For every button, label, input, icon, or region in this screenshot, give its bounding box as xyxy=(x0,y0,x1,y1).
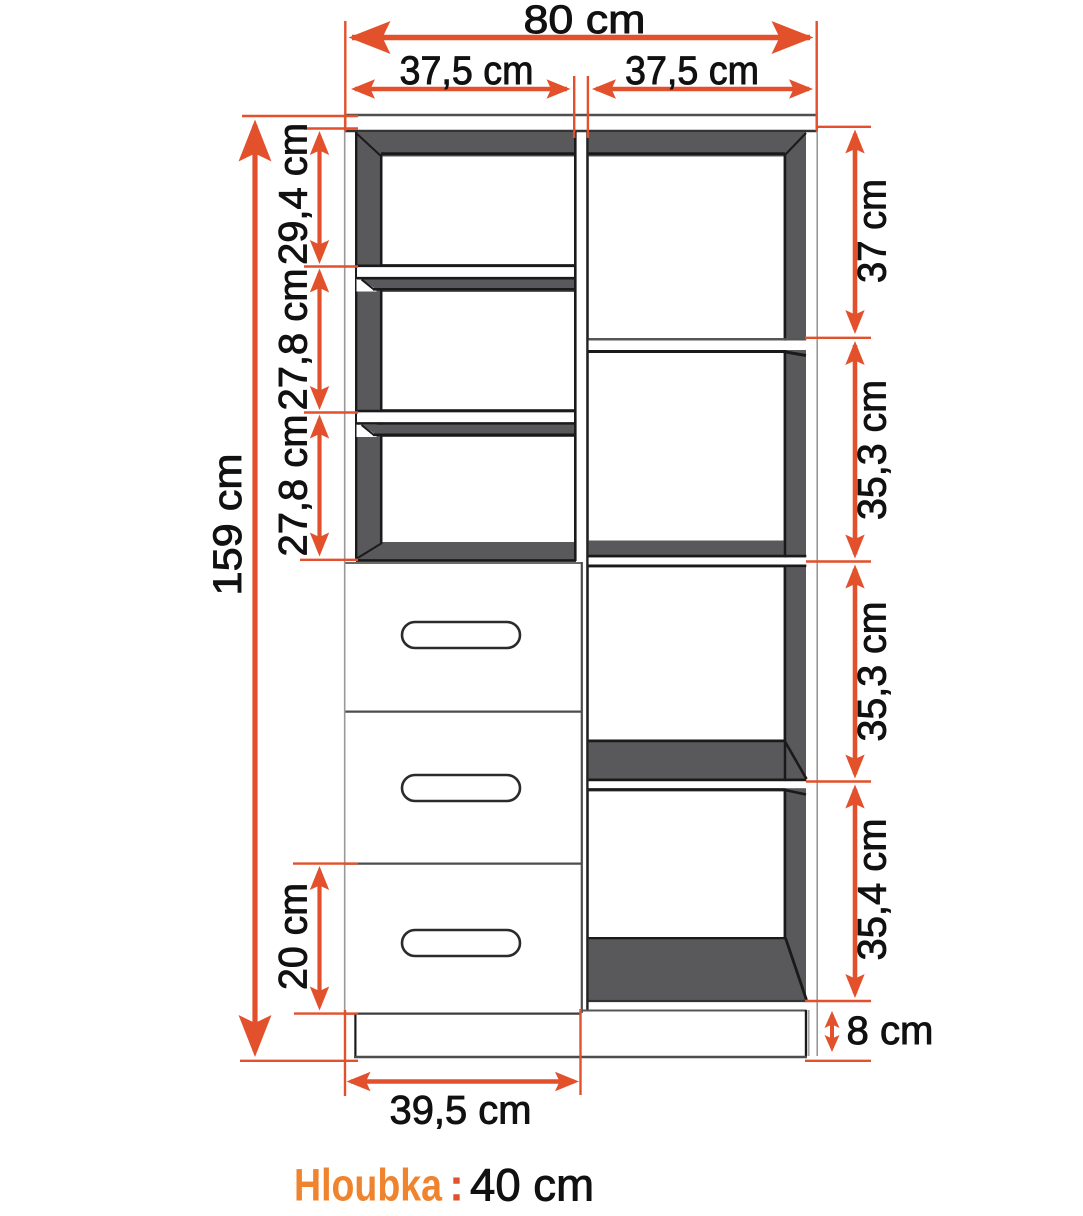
svg-text:Hloubka: Hloubka xyxy=(294,1160,443,1211)
svg-text:27,8 cm: 27,8 cm xyxy=(272,269,316,411)
svg-text:8 cm: 8 cm xyxy=(847,1009,934,1053)
svg-text::: : xyxy=(449,1160,464,1211)
svg-text:39,5 cm: 39,5 cm xyxy=(390,1089,532,1133)
svg-text:80 cm: 80 cm xyxy=(524,0,646,42)
svg-text:37,5 cm: 37,5 cm xyxy=(625,49,759,93)
svg-text:40 cm: 40 cm xyxy=(470,1160,594,1211)
svg-text:29,4 cm: 29,4 cm xyxy=(272,123,316,265)
svg-text:37 cm: 37 cm xyxy=(851,179,895,283)
svg-text:37,5 cm: 37,5 cm xyxy=(400,49,534,93)
svg-text:35,4 cm: 35,4 cm xyxy=(851,819,895,961)
svg-text:27,8 cm: 27,8 cm xyxy=(272,415,316,557)
svg-text:159 cm: 159 cm xyxy=(206,454,250,596)
svg-text:20 cm: 20 cm xyxy=(272,883,316,990)
svg-text:35,3 cm: 35,3 cm xyxy=(851,602,895,742)
svg-text:35,3 cm: 35,3 cm xyxy=(851,380,895,520)
